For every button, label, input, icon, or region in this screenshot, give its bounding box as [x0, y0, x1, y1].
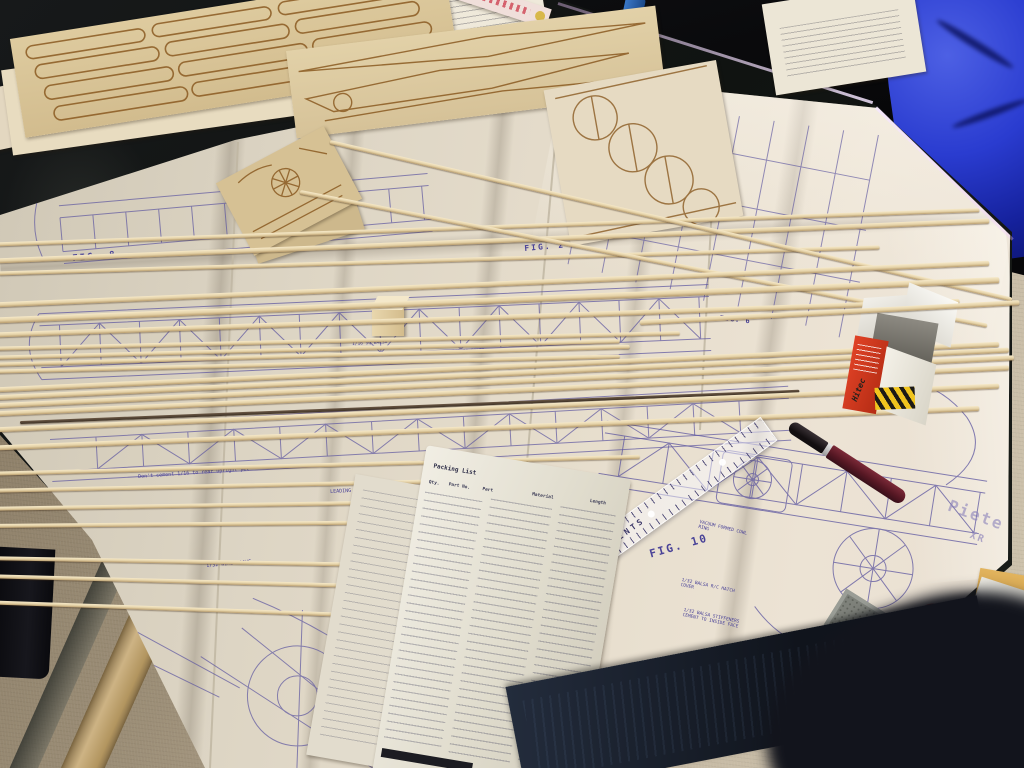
- furniture-leg: [0, 547, 55, 680]
- packing-list-col-qty: Qty.: [428, 480, 440, 487]
- servo-box-stripes: [875, 387, 916, 410]
- photo-model-airplane-workbench: FIG. 8 FIG. 2 FIG. 6 FIG. 10 Piete XR Do…: [0, 0, 1024, 768]
- packing-list-col-part: Part: [482, 487, 494, 494]
- ruler-hole: [646, 509, 656, 519]
- ruler-hole: [718, 457, 728, 467]
- instruction-text-lines: [780, 9, 906, 77]
- packing-list-col-partno: Part No.: [448, 482, 470, 491]
- servo-box-print-lines: [853, 344, 881, 374]
- packing-list-col-length: Length: [589, 499, 606, 507]
- packing-list-title: Packing List: [433, 463, 477, 477]
- packing-list-col-material: Material: [532, 492, 554, 501]
